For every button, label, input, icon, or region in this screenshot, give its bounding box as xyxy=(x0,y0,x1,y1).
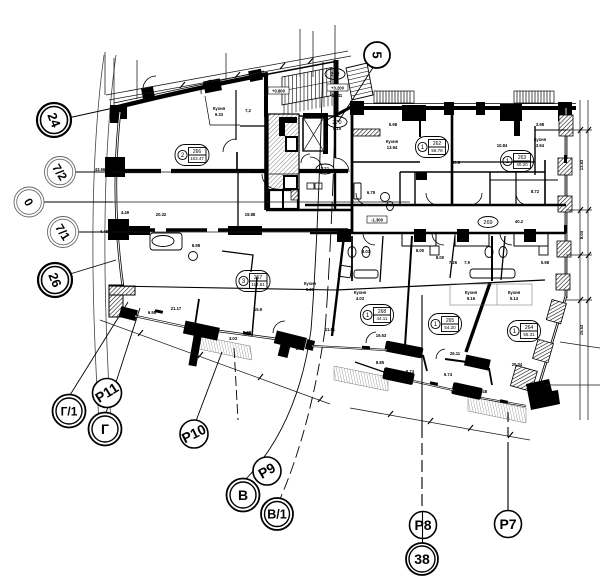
svg-text:103.47: 103.47 xyxy=(190,156,204,161)
svg-text:6.75: 6.75 xyxy=(367,190,376,195)
svg-text:30.8: 30.8 xyxy=(452,160,461,165)
svg-text:15.53: 15.53 xyxy=(579,324,584,335)
svg-text:40.2: 40.2 xyxy=(515,219,524,224)
svg-text:Г/1: Г/1 xyxy=(61,405,78,419)
svg-text:262: 262 xyxy=(433,141,442,147)
svg-text:В: В xyxy=(238,487,248,503)
svg-text:26.11: 26.11 xyxy=(450,351,461,356)
svg-text:8.00: 8.00 xyxy=(436,255,445,260)
svg-text:13.83: 13.83 xyxy=(579,159,584,170)
svg-text:4.49: 4.49 xyxy=(121,210,130,215)
svg-text:8.85: 8.85 xyxy=(376,360,385,365)
svg-text:6.98: 6.98 xyxy=(148,310,157,315)
svg-text:21.17: 21.17 xyxy=(171,306,182,311)
svg-text:19.88: 19.88 xyxy=(245,212,256,217)
svg-text:56.78: 56.78 xyxy=(431,148,443,153)
svg-text:55.31: 55.31 xyxy=(523,332,535,337)
svg-text:4.03: 4.03 xyxy=(356,296,365,301)
svg-text:19.53: 19.53 xyxy=(376,333,387,338)
svg-text:54.20: 54.20 xyxy=(444,325,456,330)
svg-text:5: 5 xyxy=(370,51,385,58)
svg-text:Кухня: Кухня xyxy=(386,139,399,144)
svg-text:15.9: 15.9 xyxy=(254,307,263,312)
svg-text:267: 267 xyxy=(254,275,263,281)
svg-text:8.03: 8.03 xyxy=(362,249,371,254)
svg-text:9.33: 9.33 xyxy=(215,112,224,117)
svg-text:13.94: 13.94 xyxy=(387,145,398,150)
svg-text:8.72: 8.72 xyxy=(531,189,540,194)
svg-text:4.48: 4.48 xyxy=(100,229,109,234)
svg-text:40.20: 40.20 xyxy=(516,162,528,167)
svg-text:В/1: В/1 xyxy=(267,508,287,522)
svg-text:Кухня: Кухня xyxy=(213,106,226,111)
svg-text:272: 272 xyxy=(330,72,339,78)
svg-text:8.98: 8.98 xyxy=(192,243,201,248)
svg-text:Кухня: Кухня xyxy=(354,290,367,295)
svg-text:6.74: 6.74 xyxy=(444,372,453,377)
svg-text:3.98: 3.98 xyxy=(536,122,545,127)
svg-text:268: 268 xyxy=(378,309,387,315)
svg-text:6.38: 6.38 xyxy=(243,330,252,335)
svg-text:5.98: 5.98 xyxy=(389,122,398,127)
svg-text:10.41: 10.41 xyxy=(332,93,343,98)
svg-text:8.74: 8.74 xyxy=(406,369,415,374)
svg-text:Кухня: Кухня xyxy=(465,290,478,295)
svg-text:4.15: 4.15 xyxy=(333,126,342,131)
svg-text:3.94: 3.94 xyxy=(536,143,545,148)
svg-text:Кухня: Кухня xyxy=(534,137,547,142)
svg-text:7,2: 7,2 xyxy=(245,108,251,113)
svg-text:112.81: 112.81 xyxy=(251,282,265,287)
svg-text:265: 265 xyxy=(446,318,455,324)
svg-text:7.26: 7.26 xyxy=(449,260,458,265)
svg-text:5.23: 5.23 xyxy=(306,287,315,292)
svg-text:20.32: 20.32 xyxy=(156,212,167,217)
svg-text:38: 38 xyxy=(414,551,430,567)
svg-text:269: 269 xyxy=(483,220,492,226)
svg-text:9.16: 9.16 xyxy=(467,296,476,301)
svg-text:2.39: 2.39 xyxy=(296,346,305,351)
svg-text:271: 271 xyxy=(320,167,329,173)
svg-text:10.84: 10.84 xyxy=(497,143,508,148)
svg-text:5.14: 5.14 xyxy=(510,296,519,301)
svg-text:263: 263 xyxy=(518,155,527,161)
svg-text:Р8: Р8 xyxy=(414,517,431,533)
svg-text:3.22: 3.22 xyxy=(413,111,422,116)
svg-text:Кухня: Кухня xyxy=(304,281,317,286)
svg-text:8.04: 8.04 xyxy=(579,230,584,239)
svg-text:-1.300: -1.300 xyxy=(371,218,384,223)
svg-text:44.11: 44.11 xyxy=(377,316,388,321)
svg-text:3.03: 3.03 xyxy=(229,336,238,341)
svg-text:266: 266 xyxy=(193,149,202,155)
svg-text:11.81: 11.81 xyxy=(325,327,336,332)
svg-text:Г: Г xyxy=(101,421,109,437)
svg-text:+0.800: +0.800 xyxy=(272,89,286,94)
svg-text:7.9: 7.9 xyxy=(464,260,470,265)
svg-text:Р7: Р7 xyxy=(499,516,516,532)
svg-text:43.66: 43.66 xyxy=(95,167,106,172)
svg-text:+3.200: +3.200 xyxy=(331,86,345,91)
svg-text:8.00: 8.00 xyxy=(416,248,425,253)
svg-text:264: 264 xyxy=(525,325,534,331)
svg-text:25.04: 25.04 xyxy=(512,362,523,367)
svg-text:5.48: 5.48 xyxy=(479,389,488,394)
svg-text:5.98: 5.98 xyxy=(541,260,550,265)
svg-text:Кухня: Кухня xyxy=(508,290,521,295)
